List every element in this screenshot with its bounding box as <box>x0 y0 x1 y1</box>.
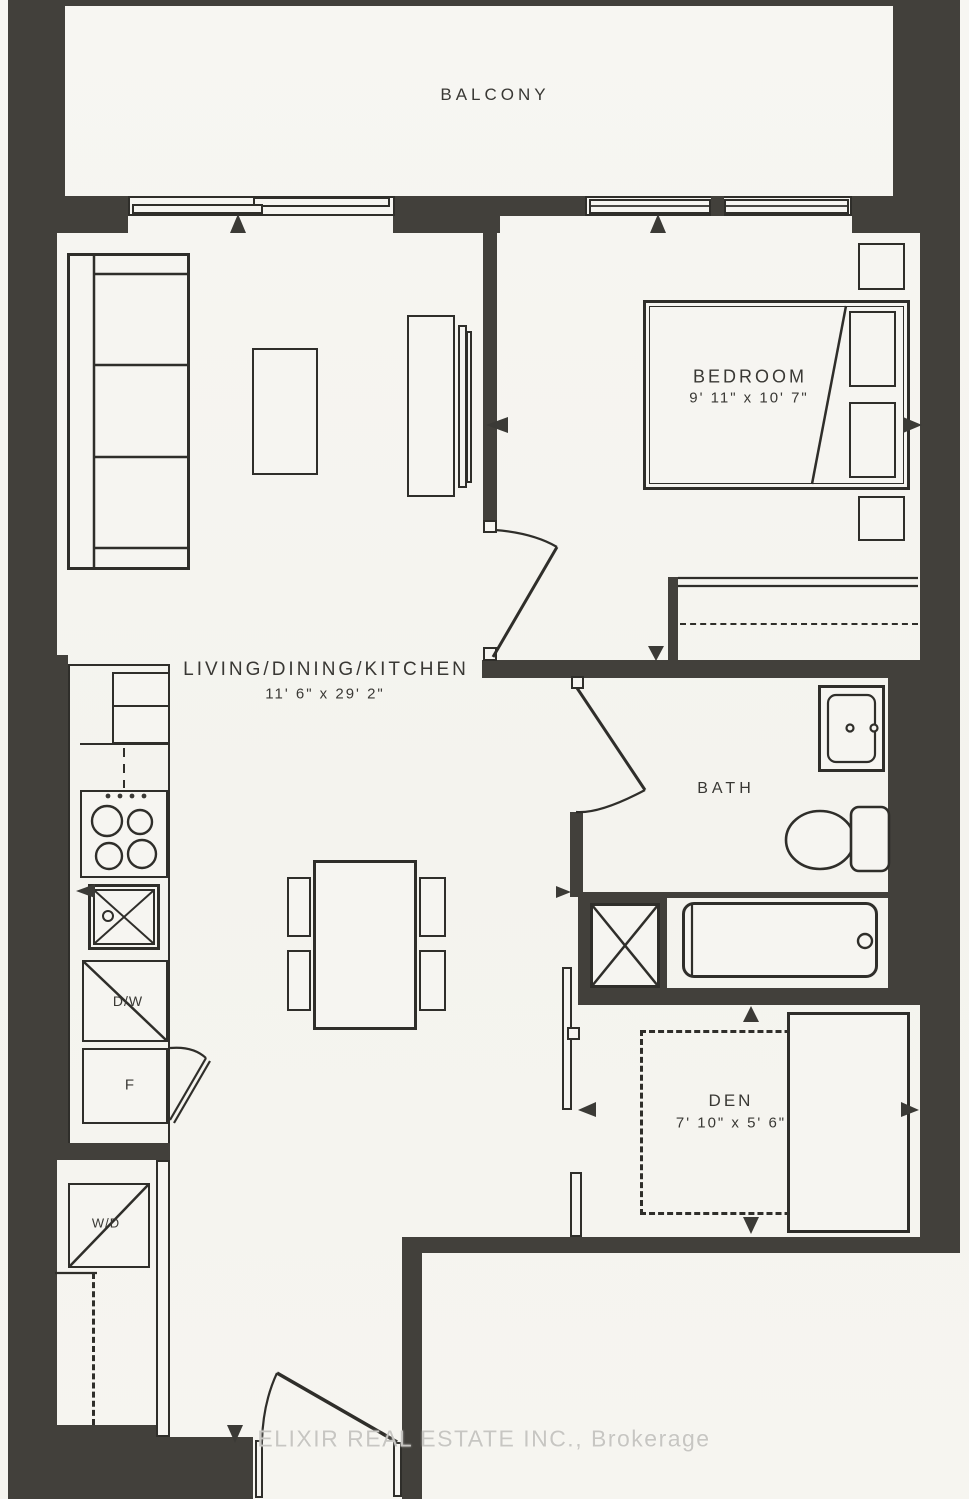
arrow-bath-wall-right <box>556 886 571 898</box>
living-dining-kitchen-dimensions: 11' 6" x 29' 2" <box>265 686 385 703</box>
living-slider-panel-left <box>132 204 263 214</box>
wall-kitchen-bottom <box>8 1143 170 1160</box>
fridge-label: F <box>125 1077 135 1094</box>
wall-closet-left <box>668 577 678 663</box>
wall-bath-right <box>888 678 920 1005</box>
bedroom-door <box>493 530 557 657</box>
dining-chair-left-bottom <box>287 950 311 1011</box>
hinge-bedroom-door-bottom <box>483 647 497 661</box>
wall-balcony-sill-left <box>57 196 128 233</box>
wall-balcony-right-block <box>893 0 960 233</box>
balcony-label: BALCONY <box>440 85 549 105</box>
arrow-den-opening-left <box>578 1102 596 1117</box>
wall-left-kitchen-thickening <box>57 655 68 1160</box>
hinge-bath-door <box>571 676 584 689</box>
wall-balcony-top-edge <box>55 0 893 6</box>
kitchen-upper-counter-cabinet <box>112 672 170 744</box>
nightstand-bottom <box>858 496 905 541</box>
tv-screen-panel <box>466 331 472 483</box>
wall-den-bottom <box>402 1237 920 1253</box>
dining-chair-right-bottom <box>419 950 446 1011</box>
dining-chair-left-top <box>287 877 311 937</box>
arrow-closet-down <box>648 646 664 661</box>
den-dimensions: 7' 10" x 5' 6" <box>676 1115 786 1132</box>
dishwasher-label: D/W <box>113 993 143 1009</box>
hinge-den-wall <box>567 1027 580 1040</box>
wall-living-bedroom-partition <box>483 216 497 527</box>
wall-balcony-sill-middle <box>393 196 585 216</box>
bathtub <box>682 902 878 978</box>
fridge-door <box>170 1048 210 1123</box>
washer-dryer-label: W/D <box>92 1216 120 1231</box>
wall-right <box>920 233 960 1253</box>
wall-balcony-sill-right <box>852 196 893 233</box>
bedroom-window-panel-left <box>589 199 711 214</box>
wall-hall-kitchen-edge <box>156 1160 170 1437</box>
kitchen-stove <box>80 790 168 878</box>
wall-bottom-right-column <box>402 1253 422 1499</box>
brokerage-watermark: ELIXIR REAL ESTATE INC., Brokerage <box>257 1426 710 1453</box>
dining-table <box>313 860 417 1030</box>
wall-left <box>8 233 57 1425</box>
den-label: DEN <box>709 1091 754 1111</box>
shower-interior <box>590 903 660 988</box>
tv-console <box>407 315 455 497</box>
bath-door <box>576 688 645 812</box>
arrow-den-down <box>743 1217 759 1234</box>
floor-plan: BALCONY BEDROOM 9' 11" x 10' 7" LIVING/D… <box>0 0 969 1499</box>
arrow-bedroom-window <box>650 214 666 233</box>
wall-bath-left-lower <box>570 812 583 897</box>
wall-bath-top <box>482 660 920 678</box>
kitchen-sink-unit <box>88 884 160 950</box>
closet-rod-dashed-line <box>680 623 918 625</box>
coffee-table <box>252 348 318 475</box>
nightstand-top <box>858 243 905 290</box>
toilet <box>786 807 889 871</box>
bed-pillow-bottom <box>849 402 896 478</box>
wall-den-left-lower <box>570 1172 582 1237</box>
bedroom-window-panel-right <box>724 199 849 214</box>
hinge-bedroom-door-top <box>483 520 497 533</box>
bath-label: BATH <box>697 780 754 798</box>
bed-pillow-top <box>849 311 896 387</box>
arrow-living-window <box>230 214 246 233</box>
bedroom-window-mullion <box>711 196 724 216</box>
living-dining-kitchen-label: LIVING/DINING/KITCHEN <box>183 659 469 681</box>
entry-closet-dashed-door <box>92 1273 95 1425</box>
arrow-den-up <box>743 1006 759 1022</box>
bath-vanity <box>818 685 885 772</box>
bedroom-dimensions: 9' 11" x 10' 7" <box>689 390 809 407</box>
wall-tub-bottom <box>578 988 920 1005</box>
wall-bottom-left-block <box>8 1425 170 1499</box>
bedroom-label: BEDROOM <box>693 367 807 388</box>
wall-bottom-entry-left <box>170 1437 253 1499</box>
dining-chair-right-top <box>419 877 446 937</box>
sofa <box>67 253 190 570</box>
wall-tub-top-line <box>667 892 890 898</box>
living-slider-panel-right <box>253 197 390 207</box>
den-desk <box>787 1012 910 1233</box>
